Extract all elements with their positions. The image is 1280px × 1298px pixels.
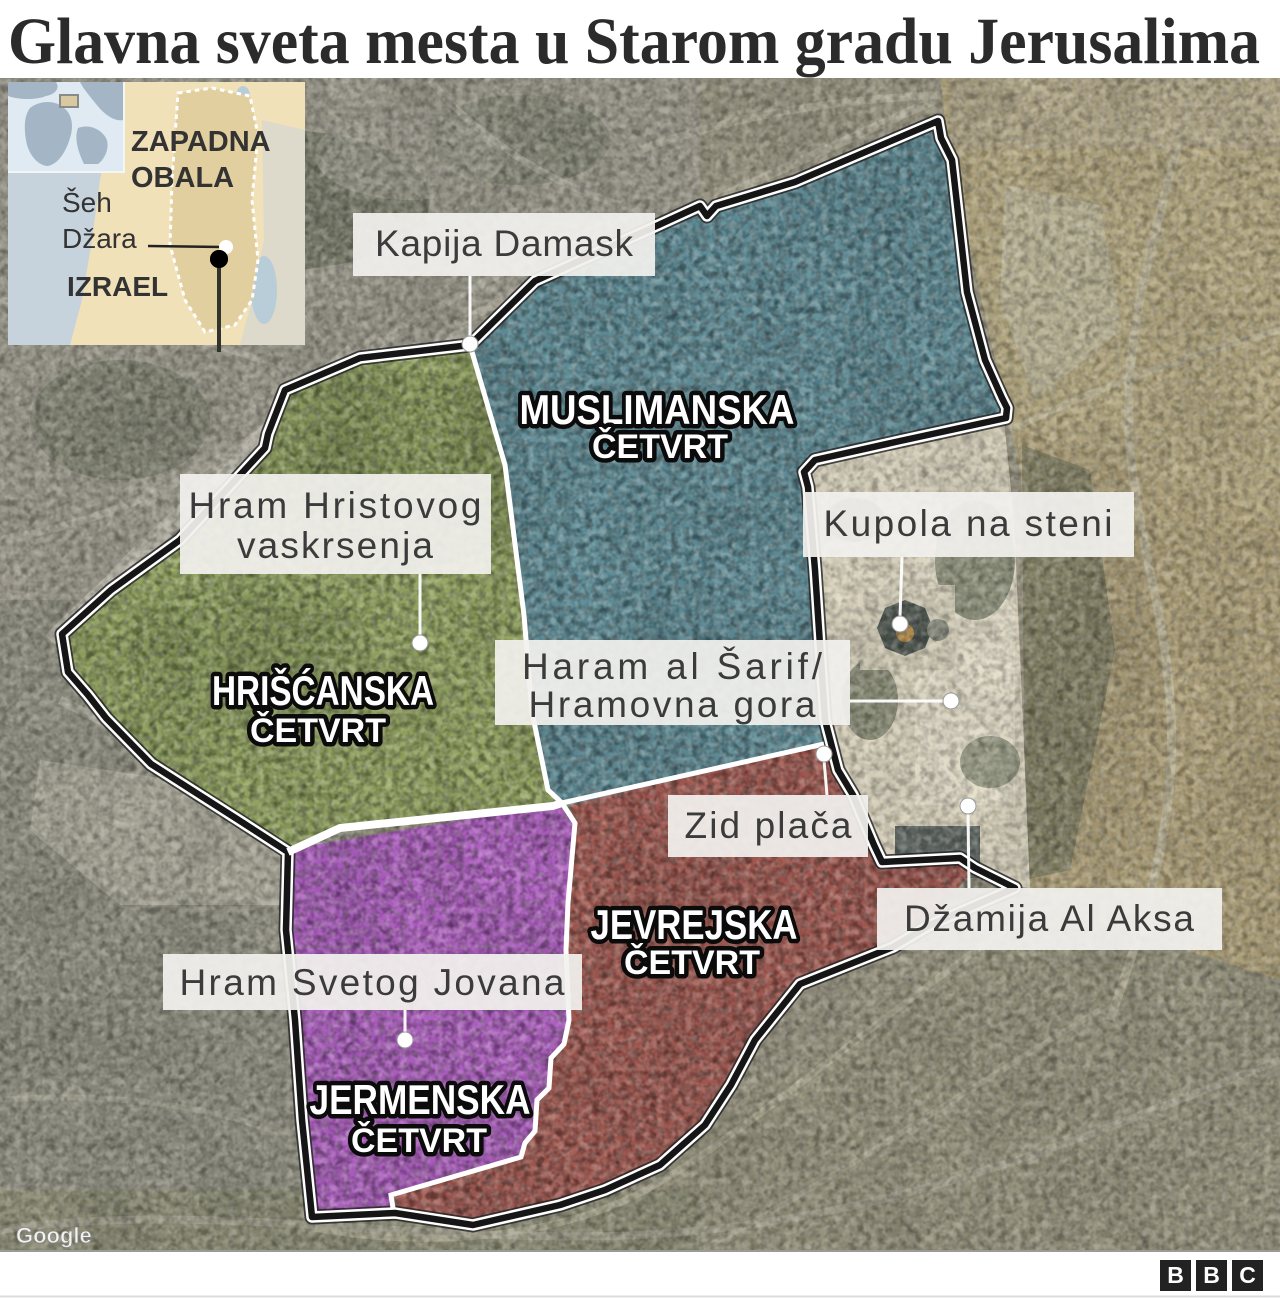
svg-text:ČETVRT: ČETVRT xyxy=(351,1121,487,1160)
svg-text:vaskrsenja: vaskrsenja xyxy=(237,525,433,566)
svg-text:IZRAEL: IZRAEL xyxy=(67,271,168,302)
svg-text:Džara: Džara xyxy=(62,223,137,254)
svg-text:B: B xyxy=(1203,1262,1220,1288)
svg-text:ZAPADNA: ZAPADNA xyxy=(131,126,271,158)
svg-text:Kapija Damask: Kapija Damask xyxy=(375,223,634,264)
svg-text:Google: Google xyxy=(16,1223,92,1248)
svg-text:B: B xyxy=(1167,1262,1184,1288)
svg-text:MUSLIMANSKA: MUSLIMANSKA xyxy=(520,386,795,433)
svg-text:Hram Svetog Jovana: Hram Svetog Jovana xyxy=(180,962,565,1003)
svg-text:Hram Hristovog: Hram Hristovog xyxy=(189,485,482,526)
svg-text:Džamija Al Aksa: Džamija Al Aksa xyxy=(904,898,1194,939)
svg-text:Glavna sveta mesta u Starom gr: Glavna sveta mesta u Starom gradu Jerusa… xyxy=(8,5,1260,78)
svg-text:Kupola na steni: Kupola na steni xyxy=(824,503,1113,544)
svg-text:ČETVRT: ČETVRT xyxy=(624,943,760,982)
svg-text:OBALA: OBALA xyxy=(131,162,234,194)
svg-text:HRIŠĆANSKA: HRIŠĆANSKA xyxy=(212,666,434,714)
svg-text:ČETVRT: ČETVRT xyxy=(250,711,386,750)
svg-text:C: C xyxy=(1239,1262,1256,1288)
svg-text:Šeh: Šeh xyxy=(62,187,112,218)
svg-text:JEVREJSKA: JEVREJSKA xyxy=(591,901,798,948)
svg-text:Haram al Šarif/: Haram al Šarif/ xyxy=(522,646,823,687)
svg-text:Zid plača: Zid plača xyxy=(685,805,852,846)
svg-text:JERMENSKA: JERMENSKA xyxy=(310,1076,531,1123)
svg-text:ČETVRT: ČETVRT xyxy=(592,427,728,466)
